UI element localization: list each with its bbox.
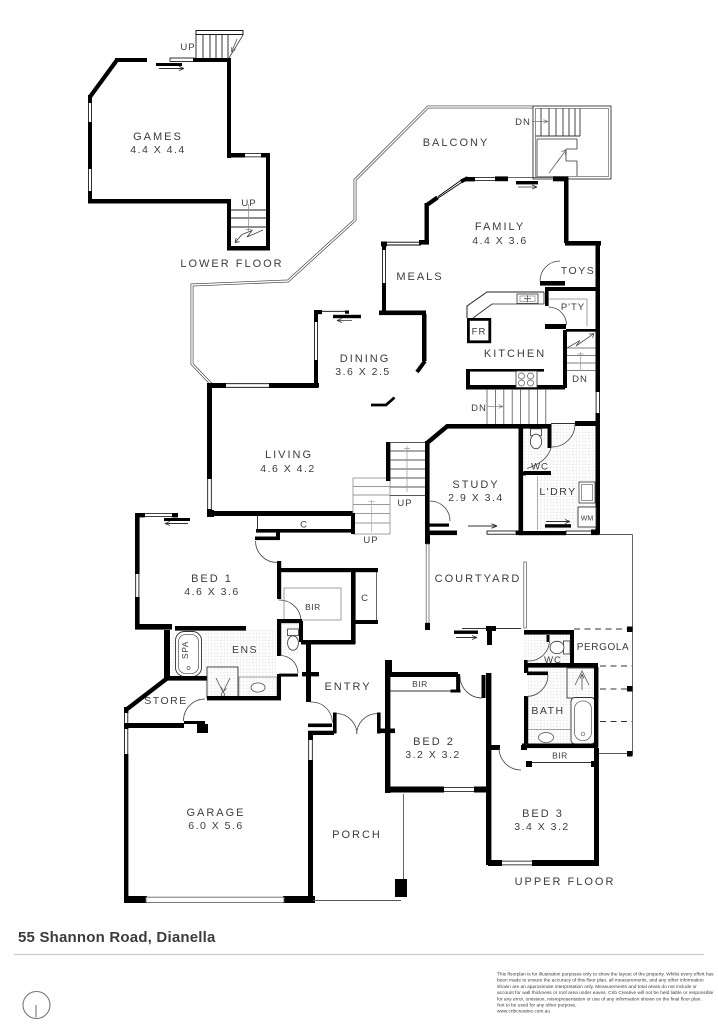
svg-text:UP: UP (180, 42, 195, 53)
svg-text:3.2 X 3.2: 3.2 X 3.2 (405, 749, 461, 761)
svg-text:P'TY: P'TY (561, 302, 585, 313)
svg-text:BIR: BIR (552, 751, 568, 761)
svg-text:KITCHEN: KITCHEN (484, 348, 546, 360)
svg-text:BIR: BIR (305, 602, 321, 612)
svg-text:WM: WM (581, 516, 594, 523)
svg-text:UP: UP (363, 535, 378, 546)
svg-text:BED 3: BED 3 (522, 808, 564, 820)
svg-text:C: C (300, 520, 308, 531)
svg-text:COURTYARD: COURTYARD (435, 573, 522, 585)
svg-text:3.6 X 2.5: 3.6 X 2.5 (335, 366, 391, 378)
svg-text:GAMES: GAMES (133, 131, 183, 143)
svg-text:MEALS: MEALS (396, 271, 443, 283)
svg-text:WC: WC (531, 462, 549, 473)
svg-text:UP: UP (397, 498, 412, 509)
svg-text:PERGOLA: PERGOLA (577, 642, 630, 653)
svg-text:4.6 X 3.6: 4.6 X 3.6 (184, 586, 240, 598)
svg-text:account for wall thickness or: account for wall thickness or roof area … (497, 990, 714, 996)
svg-text:4.4 X 3.6: 4.4 X 3.6 (472, 235, 528, 247)
svg-text:DN: DN (471, 403, 487, 414)
svg-text:TOYS: TOYS (561, 265, 595, 277)
svg-text:www.cribcreative.com.au: www.cribcreative.com.au (497, 1009, 550, 1015)
svg-text:FR: FR (472, 327, 487, 338)
svg-text:4.4 X 4.4: 4.4 X 4.4 (130, 144, 186, 156)
svg-text:3.4 X 3.2: 3.4 X 3.2 (514, 821, 570, 833)
svg-text:FAMILY: FAMILY (475, 221, 525, 233)
svg-text:L'DRY: L'DRY (539, 486, 576, 498)
svg-text:BIR: BIR (412, 679, 428, 689)
svg-text:Not to be used for any other p: Not to be used for any other purpose. (497, 1003, 576, 1009)
svg-text:PORCH: PORCH (332, 829, 382, 841)
svg-text:DINING: DINING (340, 353, 391, 365)
svg-text:BALCONY: BALCONY (423, 137, 490, 149)
svg-text:LOWER FLOOR: LOWER FLOOR (180, 258, 283, 270)
svg-text:6.0 X 5.6: 6.0 X 5.6 (188, 820, 244, 832)
svg-text:ENTRY: ENTRY (324, 681, 371, 693)
svg-text:BED 1: BED 1 (191, 573, 233, 585)
svg-text:STORE: STORE (144, 695, 187, 707)
svg-text:UP: UP (241, 198, 256, 209)
svg-text:BED 2: BED 2 (413, 736, 455, 748)
svg-text:C: C (361, 593, 369, 604)
svg-text:55 Shannon Road, Dianella: 55 Shannon Road, Dianella (18, 929, 216, 946)
svg-text:shown are an approximate inter: shown are an approximate interpretation … (497, 984, 697, 990)
svg-text:2.9 X 3.4: 2.9 X 3.4 (448, 492, 504, 504)
svg-text:STUDY: STUDY (452, 479, 499, 491)
svg-text:for any error, omission, misre: for any error, omission, misrepresentati… (497, 996, 702, 1002)
svg-text:been made to ensure the accura: been made to ensure the accuracy of this… (497, 978, 704, 984)
svg-text:LIVING: LIVING (265, 449, 313, 461)
svg-text:BATH: BATH (531, 705, 564, 717)
svg-text:UPPER FLOOR: UPPER FLOOR (515, 876, 616, 888)
svg-text:This floorplan is for illustra: This floorplan is for illustration purpo… (497, 972, 714, 978)
svg-text:ENS: ENS (232, 644, 258, 656)
svg-text:DN: DN (572, 374, 588, 385)
svg-text:DN: DN (515, 117, 531, 128)
svg-text:GARAGE: GARAGE (186, 807, 245, 819)
svg-text:4.6 X 4.2: 4.6 X 4.2 (260, 463, 316, 475)
svg-text:SPA: SPA (180, 641, 190, 659)
